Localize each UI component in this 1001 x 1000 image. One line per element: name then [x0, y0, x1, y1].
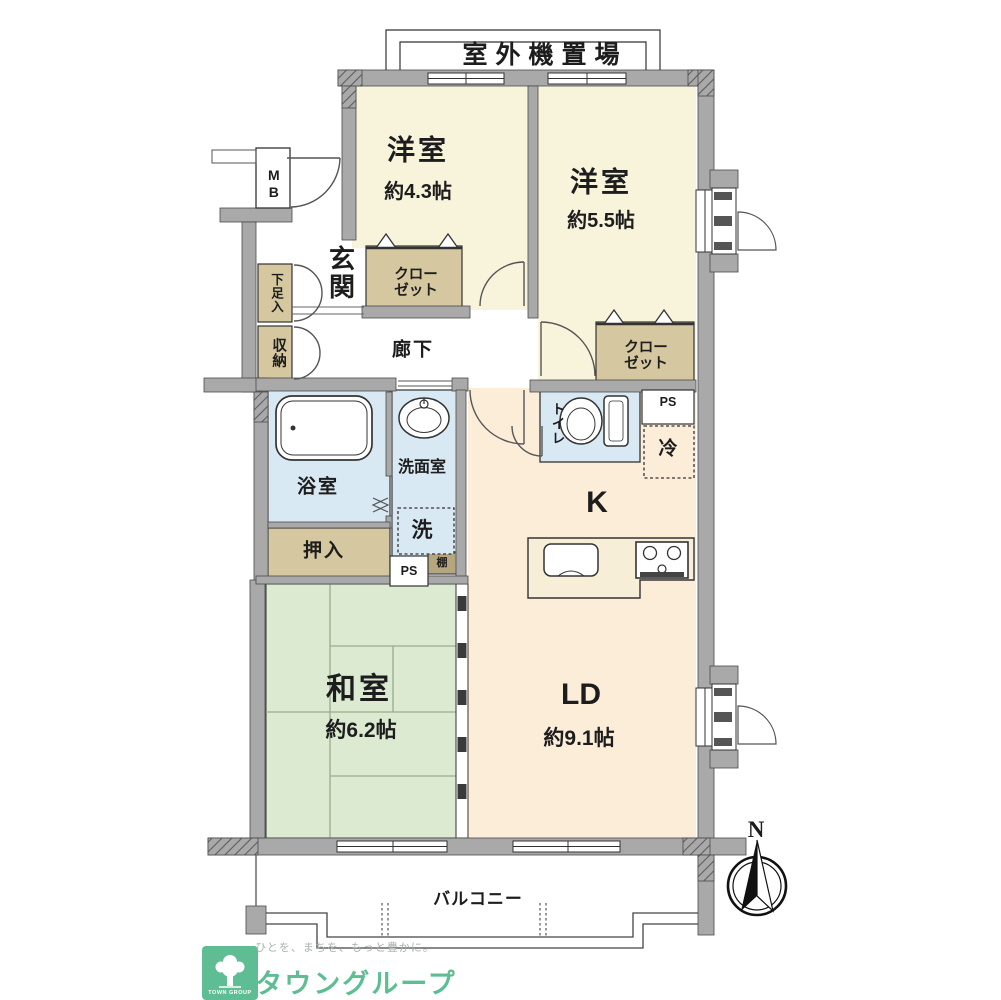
compass-north-label: N	[748, 817, 765, 843]
porch-alcove	[212, 150, 256, 163]
kitchen-label: K	[586, 486, 608, 520]
meter-box-label: MB	[265, 167, 281, 201]
room-yoshitsu1-size: 約4.3帖	[384, 181, 452, 203]
wall-yoshitsu1-bottom	[362, 306, 470, 318]
sliding-door-track	[456, 584, 468, 838]
room-washitsu-name: 和室	[326, 673, 392, 707]
oshiire-label: 押入	[303, 540, 345, 561]
room-washitsu-size: 約6.2帖	[325, 719, 396, 743]
storage-box-label: 収納	[270, 338, 286, 369]
washbasin-icon	[399, 398, 449, 438]
washer-label: 洗	[412, 519, 433, 543]
room-washitsu-floor	[266, 584, 456, 838]
stove-icon	[636, 542, 688, 578]
room-yoshitsu2-name: 洋室	[570, 166, 632, 197]
wall-left-lower	[250, 580, 265, 838]
room-ld-size: 約9.1帖	[543, 727, 614, 751]
closet2-label: クロー ゼット	[624, 340, 668, 372]
washroom-sliding-door	[398, 381, 452, 386]
hallway-label: 廊下	[392, 339, 434, 360]
wall-washroom-right	[456, 390, 466, 582]
bathtub-icon	[276, 396, 372, 460]
wall-bath-washroom	[386, 392, 392, 476]
wall-washitsu-top	[256, 576, 468, 584]
toilet-label: トイレ	[549, 402, 564, 446]
floorplan-page: 室外機置場 洋室 約4.3帖 洋室 約5.5帖 MB 玄関 下足入 収納 クロー…	[0, 0, 1001, 1000]
entry-door	[287, 158, 340, 207]
shoe-box-label: 下足入	[269, 273, 283, 314]
wall-hall-bottom-stub	[452, 378, 468, 391]
wall-left-upper	[242, 222, 256, 392]
room-yoshitsu1-name: 洋室	[387, 134, 449, 165]
floorplan-drawing	[0, 0, 1001, 1000]
balcony-pillar	[246, 906, 266, 934]
bay2-door-swing	[738, 706, 776, 744]
room-ld-name: LD	[561, 678, 601, 712]
room-yoshitsu2-size: 約5.5帖	[567, 210, 635, 232]
bay1-door-swing	[738, 212, 776, 250]
room-yoshitsu1-floor	[352, 86, 528, 248]
genkan-step	[292, 307, 364, 314]
wall-bottom	[208, 838, 746, 855]
ps-left-label: PS	[401, 564, 418, 578]
logo-caption: TOWN GROUP	[208, 990, 251, 996]
washroom-label: 洗面室	[398, 459, 446, 477]
wall-room-divider	[528, 86, 538, 318]
wall-top	[338, 70, 712, 86]
bath-label: 浴室	[297, 476, 339, 497]
footer-tagline: ひとを、まちを、もっと豊かに。	[255, 942, 435, 954]
wall-bath-oshiire	[268, 522, 390, 528]
shelf-label: 棚	[437, 557, 448, 569]
shoe-box-doors	[294, 265, 322, 321]
toilet-icon	[560, 396, 628, 446]
balcony-rail-outer	[266, 913, 698, 937]
storage-box-doors	[294, 327, 320, 379]
wall-yoshitsu1-left	[342, 86, 356, 240]
ps-right-label: PS	[660, 395, 677, 409]
wall-left-stub-top	[220, 208, 292, 222]
genkan-label: 玄関	[325, 245, 354, 301]
footer-brand: タウングループ	[255, 969, 456, 999]
wall-hall-bottom	[256, 378, 396, 391]
balcony-label: バルコニー	[433, 889, 523, 908]
outdoor-unit-label: 室外機置場	[462, 41, 627, 69]
fridge-label: 冷	[658, 438, 677, 459]
closet1-label: クロー ゼット	[394, 267, 438, 299]
